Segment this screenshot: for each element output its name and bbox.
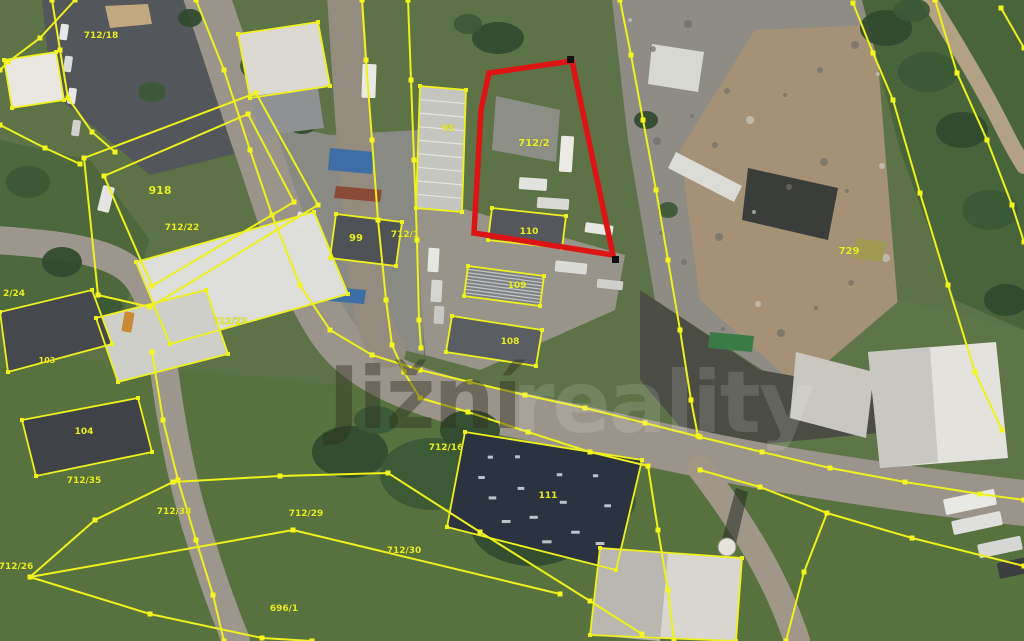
boundary-node [445, 525, 449, 529]
boundary-node [903, 480, 908, 485]
roof-debris [571, 531, 580, 534]
boundary-node [758, 485, 763, 490]
parcel-label-108: 108 [501, 337, 520, 347]
gravel-speckle [690, 114, 694, 118]
boundary-node [640, 632, 645, 637]
boundary-node [254, 91, 259, 96]
vehicle [430, 280, 442, 303]
boundary-node [538, 304, 542, 308]
boundary-node [364, 58, 369, 63]
boundary-node [828, 466, 833, 471]
roof-debris [518, 487, 525, 490]
boundary-node [161, 418, 166, 423]
gravel-speckle [786, 184, 792, 190]
gravel-speckle [820, 158, 828, 166]
tree-canopy [138, 82, 166, 102]
gravel-speckle [653, 137, 661, 145]
parcel-label-712/38: 712/38 [157, 507, 192, 517]
boundary-node [641, 118, 646, 123]
parcel-label-110: 110 [520, 227, 539, 237]
boundary-node [933, 0, 938, 3]
gravel-speckle [712, 142, 718, 148]
area-sand-patch [105, 4, 152, 28]
parcel-label-109: 109 [508, 281, 527, 291]
roof-debris [560, 501, 567, 504]
boundary-node [0, 123, 3, 128]
tree-canopy [6, 166, 50, 198]
boundary-node [656, 528, 661, 533]
parcel-label-712/26: 712/26 [0, 562, 33, 572]
boundary-node [278, 474, 283, 479]
boundary-node [248, 148, 253, 153]
boundary-node [113, 150, 118, 155]
boundary-node [54, 50, 58, 54]
boundary-node [400, 220, 404, 224]
gravel-speckle [876, 72, 880, 76]
gravel-speckle [684, 20, 692, 28]
boundary-node [598, 546, 602, 550]
tree-canopy [454, 14, 482, 34]
boundary-node [6, 370, 10, 374]
gravel-speckle [848, 280, 854, 286]
boundary-node [298, 283, 303, 288]
map-viewport[interactable]: 712/18918712/222/24712/2399712/195712/21… [0, 0, 1024, 641]
boundary-node [116, 380, 120, 384]
gravel-speckle [777, 329, 785, 337]
vehicle [559, 136, 574, 173]
boundary-node [678, 328, 683, 333]
boundary-node [614, 568, 618, 572]
boundary-node [312, 210, 316, 214]
parcel-label-103: 103 [39, 356, 56, 365]
boundary-node [370, 138, 375, 143]
parcel-label-712/18: 712/18 [84, 31, 119, 41]
vehicle [519, 177, 548, 191]
boundary-node [999, 6, 1004, 11]
boundary-node [946, 283, 951, 288]
boundary-node [955, 71, 960, 76]
boundary-node [136, 396, 140, 400]
boundary-node [418, 84, 422, 88]
boundary-node [168, 342, 172, 346]
boundary-node [802, 570, 807, 575]
gravel-speckle [752, 210, 756, 214]
boundary-node [62, 98, 66, 102]
parcel-label-95: 95 [442, 124, 455, 134]
watermark-text: Jižní [323, 349, 527, 449]
boundary-node [148, 612, 153, 617]
survey-marker [612, 256, 619, 263]
tree-canopy [936, 112, 988, 148]
boundary-node [78, 162, 83, 167]
boundary-node [390, 343, 395, 348]
boundary-node [646, 464, 651, 469]
boundary-node [851, 1, 856, 6]
building-barn-top-left [4, 52, 64, 108]
boundary-node [542, 274, 546, 278]
boundary-node [58, 48, 63, 53]
gravel-speckle [650, 46, 656, 52]
boundary-node [110, 342, 114, 346]
aerial-map[interactable]: 712/18918712/222/24712/2399712/195712/21… [0, 0, 1024, 641]
boundary-node [985, 138, 990, 143]
tree-canopy [178, 9, 202, 27]
gravel-speckle [628, 18, 632, 22]
boundary-node [10, 106, 14, 110]
parcel-label-2/24: 2/24 [3, 289, 25, 299]
boundary-node [28, 575, 33, 580]
boundary-node [464, 88, 468, 92]
boundary-node [376, 218, 381, 223]
boundary-node [6, 60, 11, 65]
boundary-node [20, 418, 24, 422]
vehicle [71, 120, 81, 137]
boundary-node [825, 511, 830, 516]
parcel-label-104: 104 [75, 427, 94, 437]
boundary-node [90, 288, 94, 292]
boundary-node [96, 293, 101, 298]
boundary-node [150, 450, 154, 454]
roof-debris [596, 542, 605, 545]
parcel-label-712/2: 712/2 [518, 138, 550, 149]
boundary-node [291, 528, 296, 533]
boundary-node [82, 156, 87, 161]
building-hall-95 [416, 86, 466, 212]
roof-debris [557, 473, 563, 476]
boundary-node [409, 78, 414, 83]
boundary-node [588, 599, 593, 604]
boundary-node [871, 51, 876, 56]
boundary-node [417, 318, 422, 323]
boundary-node [386, 471, 391, 476]
roof-debris [593, 474, 598, 477]
roof-debris [604, 504, 611, 507]
vehicle [434, 306, 445, 324]
parcel-label-712/23: 712/23 [213, 317, 248, 327]
boundary-node [462, 294, 466, 298]
boundary-node [246, 112, 251, 117]
gravel-speckle [817, 67, 823, 73]
building-hall-99 [330, 214, 402, 266]
area-junk-pile [492, 96, 560, 162]
roof-debris [478, 476, 485, 479]
gravel-speckle [879, 163, 885, 169]
boundary-node [0, 68, 3, 73]
watermark-faint-text: reality [512, 353, 814, 453]
boundary-node [406, 0, 411, 3]
boundary-node [1010, 203, 1015, 208]
boundary-node [629, 53, 634, 58]
boundary-node [34, 474, 38, 478]
building-white-top [238, 22, 330, 98]
boundary-node [666, 588, 671, 593]
gravel-speckle [783, 93, 787, 97]
boundary-node [316, 20, 320, 24]
boundary-node [66, 96, 71, 101]
roof-debris [542, 540, 551, 543]
boundary-node [412, 158, 417, 163]
boundary-node [666, 258, 671, 263]
boundary-node [360, 0, 365, 3]
gravel-speckle [851, 41, 859, 49]
boundary-node [50, 0, 55, 3]
boundary-node [490, 206, 494, 210]
building-blue-roof-1 [328, 148, 374, 174]
boundary-node [486, 238, 490, 242]
boundary-node [38, 36, 43, 41]
boundary-node [194, 0, 199, 3]
boundary-node [194, 538, 199, 543]
parcel-label-712/29: 712/29 [289, 509, 324, 519]
boundary-node [260, 636, 265, 641]
building-warehouse-right-roof [868, 347, 938, 468]
parcel-label-918: 918 [149, 184, 172, 197]
boundary-node [211, 593, 216, 598]
boundary-node [328, 256, 332, 260]
boundary-node [0, 310, 2, 314]
gravel-speckle [681, 259, 687, 265]
gravel-speckle [755, 301, 761, 307]
gravel-speckle [724, 88, 730, 94]
boundary-node [618, 0, 623, 3]
vehicle [537, 197, 570, 210]
boundary-node [640, 458, 644, 462]
parcel-label-712/1: 712/1 [391, 230, 419, 240]
building-bldg-bottom-right-roof [590, 548, 668, 641]
parcel-label-729: 729 [839, 246, 860, 257]
boundary-node [93, 518, 98, 523]
boundary-node [978, 492, 983, 497]
gravel-speckle [715, 233, 723, 241]
boundary-node [334, 212, 338, 216]
boundary-node [740, 556, 744, 560]
boundary-node [222, 68, 227, 73]
parcel-label-99: 99 [349, 233, 363, 244]
gravel-speckle [746, 116, 754, 124]
boundary-node [891, 98, 896, 103]
boundary-node [540, 328, 544, 332]
boundary-node [102, 174, 107, 179]
boundary-node [564, 214, 568, 218]
boundary-node [328, 84, 332, 88]
roof-debris [530, 516, 538, 519]
boundary-node [43, 146, 48, 151]
boundary-node [171, 480, 176, 485]
area-white-heap [648, 44, 704, 92]
parcel-label-712/35: 712/35 [67, 476, 102, 486]
boundary-node [460, 210, 464, 214]
boundary-node [236, 32, 240, 36]
boundary-node [226, 352, 230, 356]
boundary-node [134, 260, 138, 264]
parcel-label-712/22: 712/22 [165, 223, 200, 233]
tree-canopy [898, 52, 958, 92]
boundary-node [94, 316, 98, 320]
boundary-node [384, 298, 389, 303]
parcel-label-696/1: 696/1 [270, 604, 298, 614]
boundary-node [2, 58, 6, 62]
boundary-node [316, 203, 321, 208]
tree-canopy [634, 111, 658, 129]
boundary-node [918, 191, 923, 196]
gravel-speckle [721, 327, 725, 331]
boundary-node [346, 292, 350, 296]
roof-debris [515, 455, 520, 458]
boundary-node [148, 305, 153, 310]
boundary-node [558, 592, 563, 597]
boundary-node [90, 130, 95, 135]
boundary-node [292, 200, 297, 205]
boundary-node [328, 328, 333, 333]
roof-debris [489, 496, 497, 499]
boundary-node [150, 350, 155, 355]
boundary-node [394, 264, 398, 268]
boundary-node [910, 536, 915, 541]
boundary-node [466, 264, 470, 268]
parcel-label-111: 111 [539, 491, 558, 501]
boundary-node [973, 370, 978, 375]
boundary-node [698, 468, 703, 473]
gravel-speckle [814, 306, 818, 310]
boundary-node [588, 633, 592, 637]
boundary-node [150, 284, 155, 289]
boundary-node [478, 530, 483, 535]
water-tower [718, 538, 736, 556]
roof-debris [502, 520, 511, 523]
boundary-node [1000, 428, 1005, 433]
vehicle [427, 248, 439, 273]
boundary-node [450, 314, 454, 318]
boundary-node [176, 478, 181, 483]
boundary-node [73, 0, 78, 3]
parcel-label-712/30: 712/30 [387, 546, 422, 556]
tree-canopy [42, 247, 82, 277]
boundary-node [204, 288, 208, 292]
roof-debris [488, 456, 493, 459]
survey-marker [567, 56, 574, 63]
gravel-speckle [845, 189, 849, 193]
boundary-node [654, 188, 659, 193]
